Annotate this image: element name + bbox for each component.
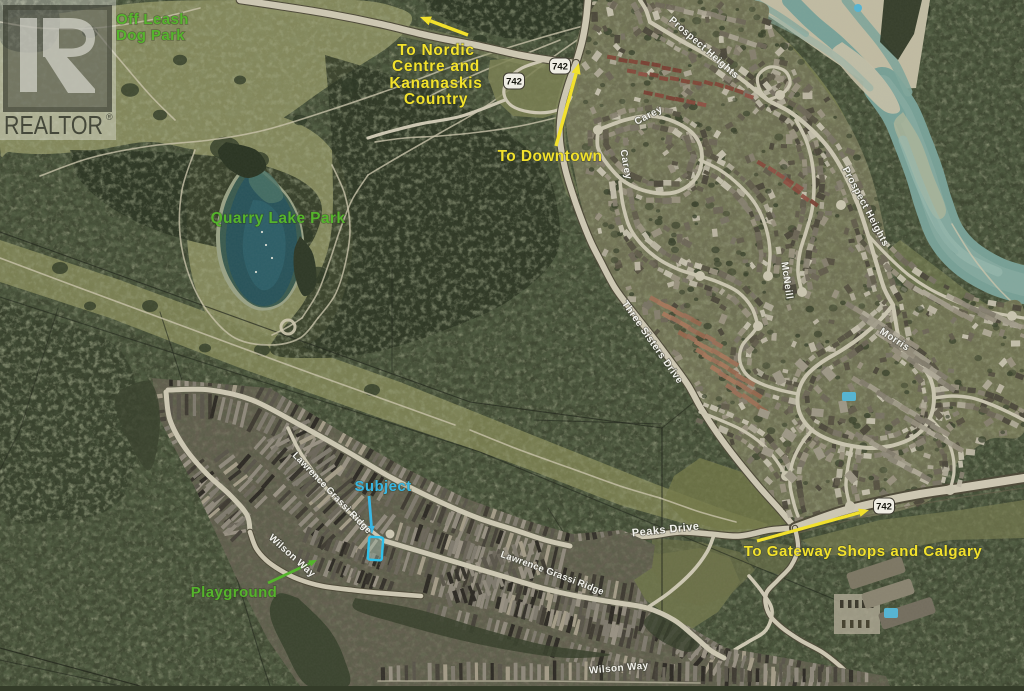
svg-text:REALTOR: REALTOR xyxy=(4,110,103,140)
svg-text:®: ® xyxy=(106,112,113,122)
svg-text:Centre and: Centre and xyxy=(392,58,480,75)
svg-text:Subject: Subject xyxy=(355,478,412,495)
svg-text:To Nordic: To Nordic xyxy=(397,42,474,59)
svg-text:Kananaskis: Kananaskis xyxy=(389,75,482,92)
svg-text:Off Leash: Off Leash xyxy=(116,11,189,28)
svg-text:Playground: Playground xyxy=(191,584,278,601)
svg-text:742: 742 xyxy=(876,502,892,513)
svg-text:Dog Park: Dog Park xyxy=(116,27,185,44)
svg-text:742: 742 xyxy=(552,62,568,73)
svg-text:Country: Country xyxy=(404,91,468,108)
svg-text:742: 742 xyxy=(506,77,522,88)
svg-text:Quarry Lake Park: Quarry Lake Park xyxy=(211,210,346,227)
svg-text:To Gateway Shops and Calgary: To Gateway Shops and Calgary xyxy=(744,543,983,560)
svg-text:To Downtown: To Downtown xyxy=(498,148,603,165)
